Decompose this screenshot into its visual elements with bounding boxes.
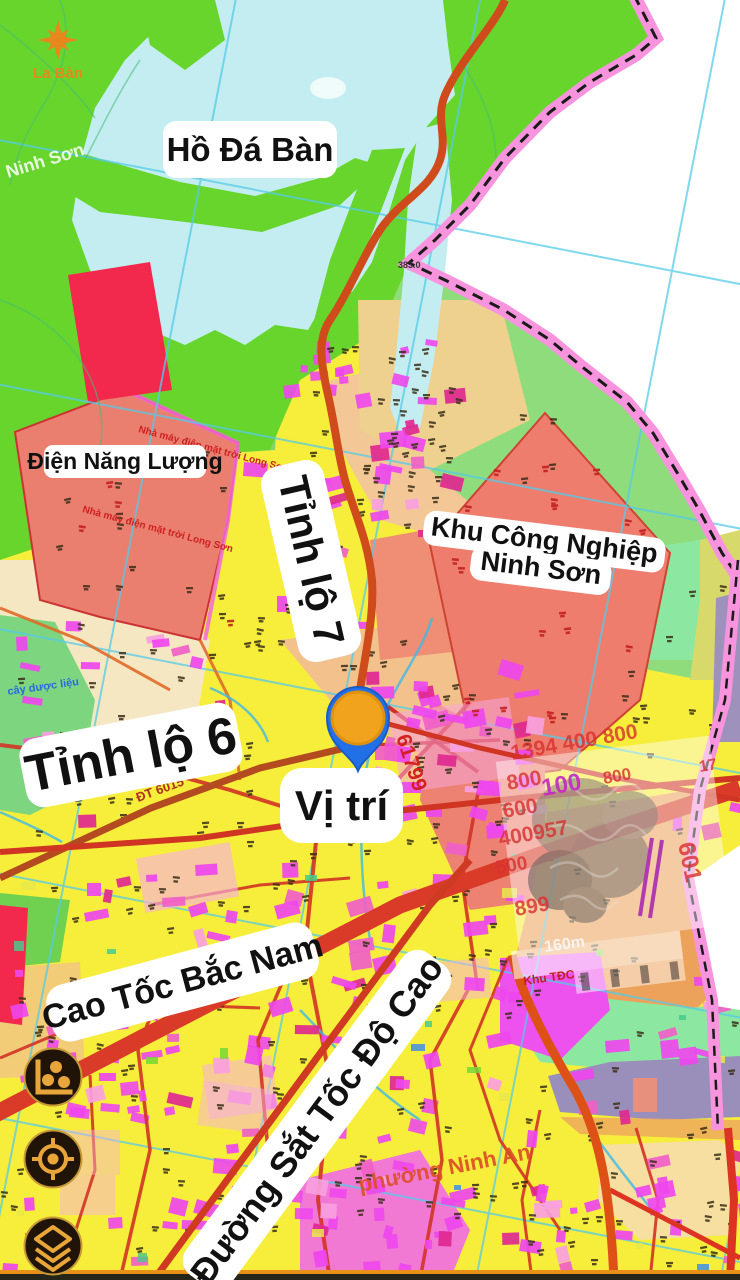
svg-text:17: 17 xyxy=(698,756,719,776)
svg-text:La Bàn: La Bàn xyxy=(33,65,83,82)
svg-text:383.0: 383.0 xyxy=(398,260,421,270)
